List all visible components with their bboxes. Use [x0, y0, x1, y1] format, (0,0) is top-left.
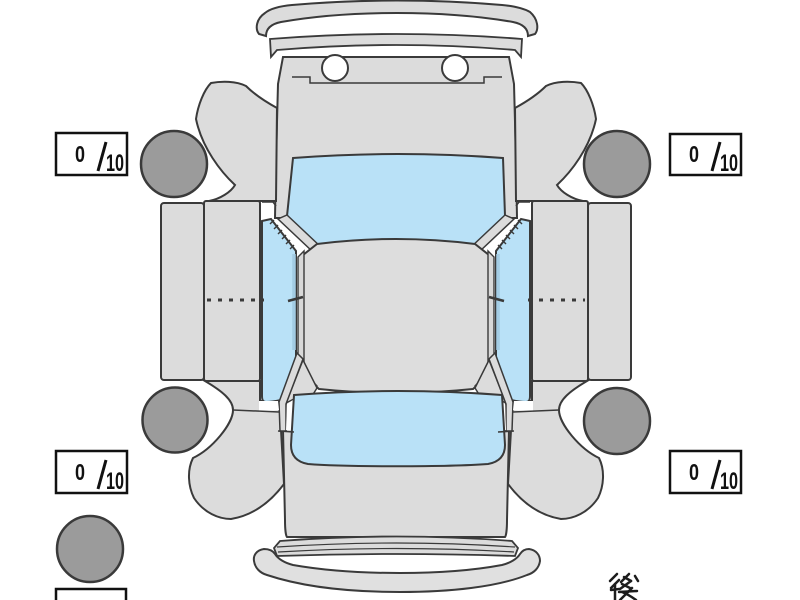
svg-text:10: 10 — [720, 150, 738, 177]
svg-text:0: 0 — [75, 459, 85, 485]
svg-text:0: 0 — [689, 141, 699, 167]
svg-text:0: 0 — [75, 141, 85, 167]
svg-text:0: 0 — [689, 459, 699, 485]
svg-text:10: 10 — [106, 150, 124, 177]
svg-text:10: 10 — [720, 468, 738, 495]
svg-text:10: 10 — [106, 468, 124, 495]
